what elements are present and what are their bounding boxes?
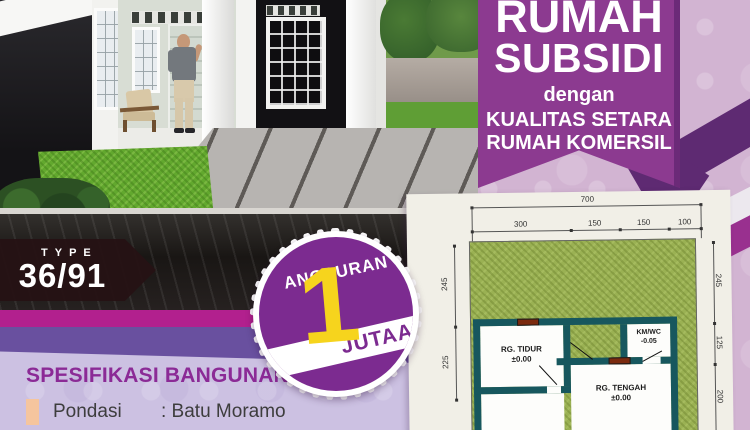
dim-tick	[668, 228, 671, 231]
type-value: 36/91	[0, 259, 125, 294]
dim-right-label: 200	[715, 381, 724, 411]
dim-tick	[454, 326, 457, 329]
room-tidur-label: RG. TIDUR ±0.00	[484, 344, 558, 365]
porch-window	[132, 27, 160, 93]
spec-bullet	[26, 399, 39, 425]
banner-line-3: dengan	[478, 84, 680, 107]
person-shoe	[185, 128, 195, 133]
dim-seg-label: 100	[670, 217, 700, 226]
dim-line-left	[454, 246, 457, 401]
dim-tick	[619, 228, 622, 231]
person-leg	[185, 98, 193, 129]
badge-number: 1	[294, 249, 363, 362]
dim-tick	[453, 245, 456, 248]
banner-line-4: KUALITAS SETARA	[478, 109, 680, 132]
dim-tick	[570, 229, 573, 232]
dim-left-label: 225	[441, 347, 450, 377]
dim-tick	[712, 241, 715, 244]
person-shoe	[174, 128, 184, 133]
porch-chair	[120, 90, 160, 132]
dim-right-label: 245	[714, 265, 723, 295]
dim-guide	[700, 205, 701, 238]
spec-value: : Batu Moramo	[161, 401, 286, 423]
plan-window-marker	[517, 318, 539, 325]
flyer: RUMAH SUBSIDI dengan KUALITAS SETARA RUM…	[0, 0, 750, 430]
dim-seg-label: 150	[580, 218, 610, 227]
chair-leg	[123, 120, 127, 132]
room-elevation: -0.05	[627, 337, 670, 346]
center-window	[266, 17, 326, 109]
badge-face: ANGSURAN JUTAAN 1	[259, 237, 413, 391]
dim-seg-label: 150	[629, 218, 659, 227]
dim-tick	[471, 230, 474, 233]
dim-tick	[455, 399, 458, 402]
spec-label: Pondasi	[53, 401, 161, 423]
banner-line-1: RUMAH	[478, 0, 680, 39]
plan-window-marker	[609, 357, 631, 364]
type-badge: TYPE 36/91	[0, 239, 156, 301]
banner-edge-fold	[674, 0, 680, 188]
dim-tick	[700, 227, 703, 230]
dim-left-label: 245	[440, 269, 449, 299]
person-arm	[168, 50, 174, 72]
room-lower-interior	[481, 393, 565, 430]
room-tengah-label: RG. TENGAH ±0.00	[577, 383, 665, 404]
dim-tick	[714, 363, 717, 366]
installment-badge: ANGSURAN JUTAAN 1	[250, 228, 422, 400]
door-opening	[547, 386, 561, 393]
banner-line-2: SUBSIDI	[478, 39, 680, 78]
person-leg	[175, 98, 183, 129]
dim-tick	[713, 322, 716, 325]
person	[166, 34, 202, 134]
dim-guide	[471, 208, 472, 241]
vent-windows	[266, 5, 320, 16]
boundary-wall	[386, 58, 478, 104]
person-shirt	[172, 47, 196, 82]
dim-seg-label: 300	[506, 219, 536, 228]
dim-total-label: 700	[572, 195, 602, 204]
chair-leg	[152, 120, 156, 132]
dim-right-label: 125	[715, 327, 724, 357]
room-kmwc-label: KM/WC -0.05	[627, 329, 670, 347]
chair-seat	[123, 112, 155, 121]
porch-pillar-right	[346, 0, 376, 150]
dim-line-total	[471, 204, 701, 208]
room-elevation: ±0.00	[577, 393, 665, 404]
floorplan-paper: 700 300 150 150 100 245 225 245 125 200	[406, 190, 733, 430]
spec-item: Pondasi : Batu Moramo	[26, 399, 416, 425]
side-garden	[386, 0, 478, 148]
wall	[563, 325, 571, 386]
room-elevation: ±0.00	[485, 354, 559, 365]
